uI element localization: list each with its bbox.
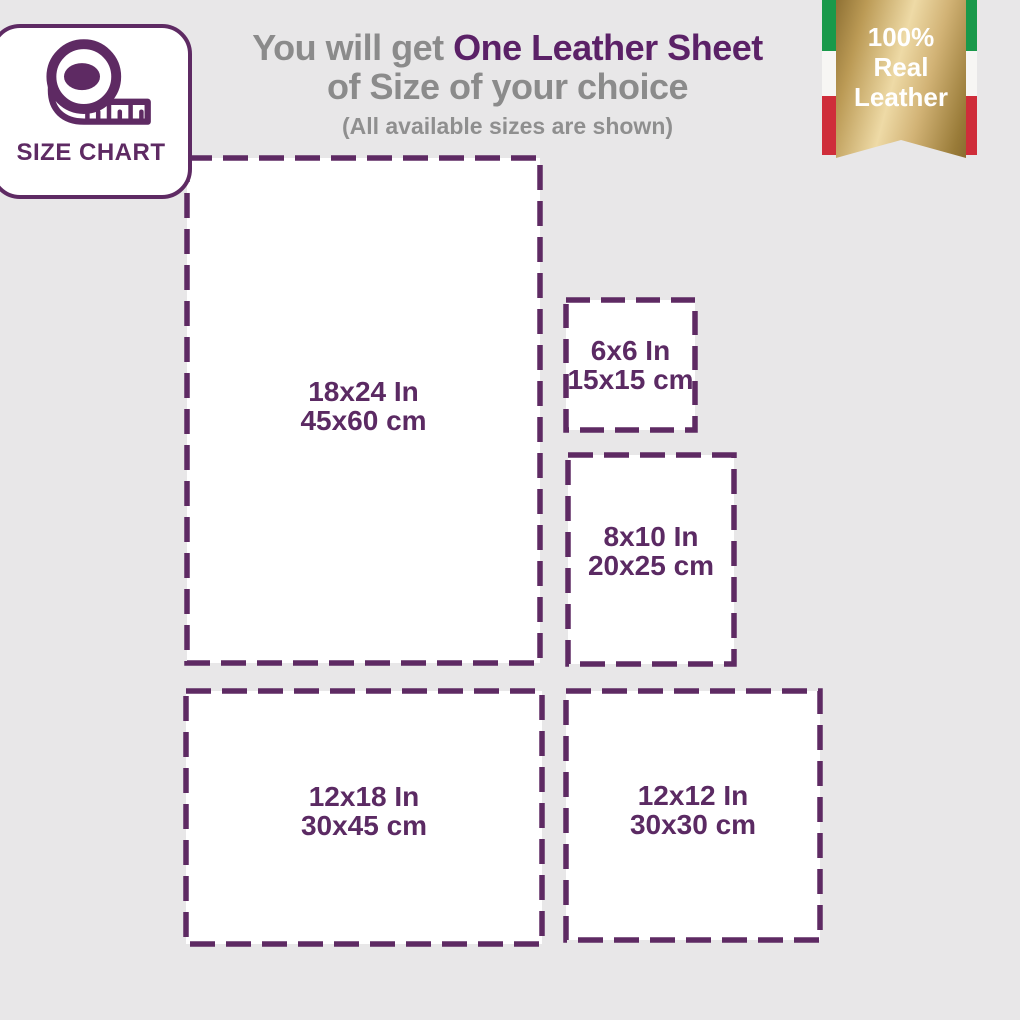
tape-measure-icon: [28, 36, 154, 137]
size-box-6x6: 6x6 In 15x15 cm: [563, 297, 698, 433]
size-label: 18x24 In 45x60 cm: [184, 150, 543, 661]
flag-stripe-left: [822, 0, 837, 155]
size-label: 6x6 In 15x15 cm: [563, 297, 698, 433]
size-box-12x12: 12x12 In 30x30 cm: [563, 688, 823, 943]
heading-note: (All available sizes are shown): [180, 113, 835, 140]
size-label: 8x10 In 20x25 cm: [565, 443, 737, 658]
ribbon-line-2: Real: [836, 52, 966, 82]
size-box-18x24: 18x24 In 45x60 cm: [184, 155, 543, 666]
size-inches: 6x6 In: [591, 336, 670, 365]
size-chart-infographic: You will get One Leather Sheet of Size o…: [0, 0, 1020, 1020]
flag-white-segment: [822, 51, 837, 96]
size-cm: 45x60 cm: [300, 406, 426, 435]
size-cm: 20x25 cm: [588, 551, 714, 580]
size-cm: 30x30 cm: [630, 810, 756, 839]
heading-line-2: of Size of your choice: [180, 67, 835, 106]
size-box-12x18: 12x18 In 30x45 cm: [183, 688, 545, 947]
flag-red-segment: [822, 96, 837, 155]
size-inches: 18x24 In: [308, 377, 419, 406]
heading-highlight: One Leather Sheet: [453, 27, 763, 68]
real-leather-ribbon: 100% Real Leather: [822, 0, 977, 160]
size-inches: 12x12 In: [638, 781, 749, 810]
heading: You will get One Leather Sheet of Size o…: [180, 28, 835, 140]
heading-line-1: You will get One Leather Sheet: [180, 28, 835, 67]
gold-banner: 100% Real Leather: [836, 0, 966, 158]
size-inches: 12x18 In: [309, 782, 420, 811]
size-chart-badge: SIZE CHART: [0, 24, 192, 199]
ribbon-line-3: Leather: [836, 82, 966, 112]
size-label: 12x12 In 30x30 cm: [563, 682, 823, 937]
size-inches: 8x10 In: [604, 522, 699, 551]
size-label: 12x18 In 30x45 cm: [183, 681, 545, 940]
heading-prefix: You will get: [252, 27, 453, 68]
size-box-8x10: 8x10 In 20x25 cm: [565, 452, 737, 667]
ribbon-line-1: 100%: [836, 22, 966, 52]
size-cm: 15x15 cm: [567, 365, 693, 394]
size-cm: 30x45 cm: [301, 811, 427, 840]
flag-green-segment: [822, 0, 837, 51]
badge-label: SIZE CHART: [17, 139, 166, 167]
